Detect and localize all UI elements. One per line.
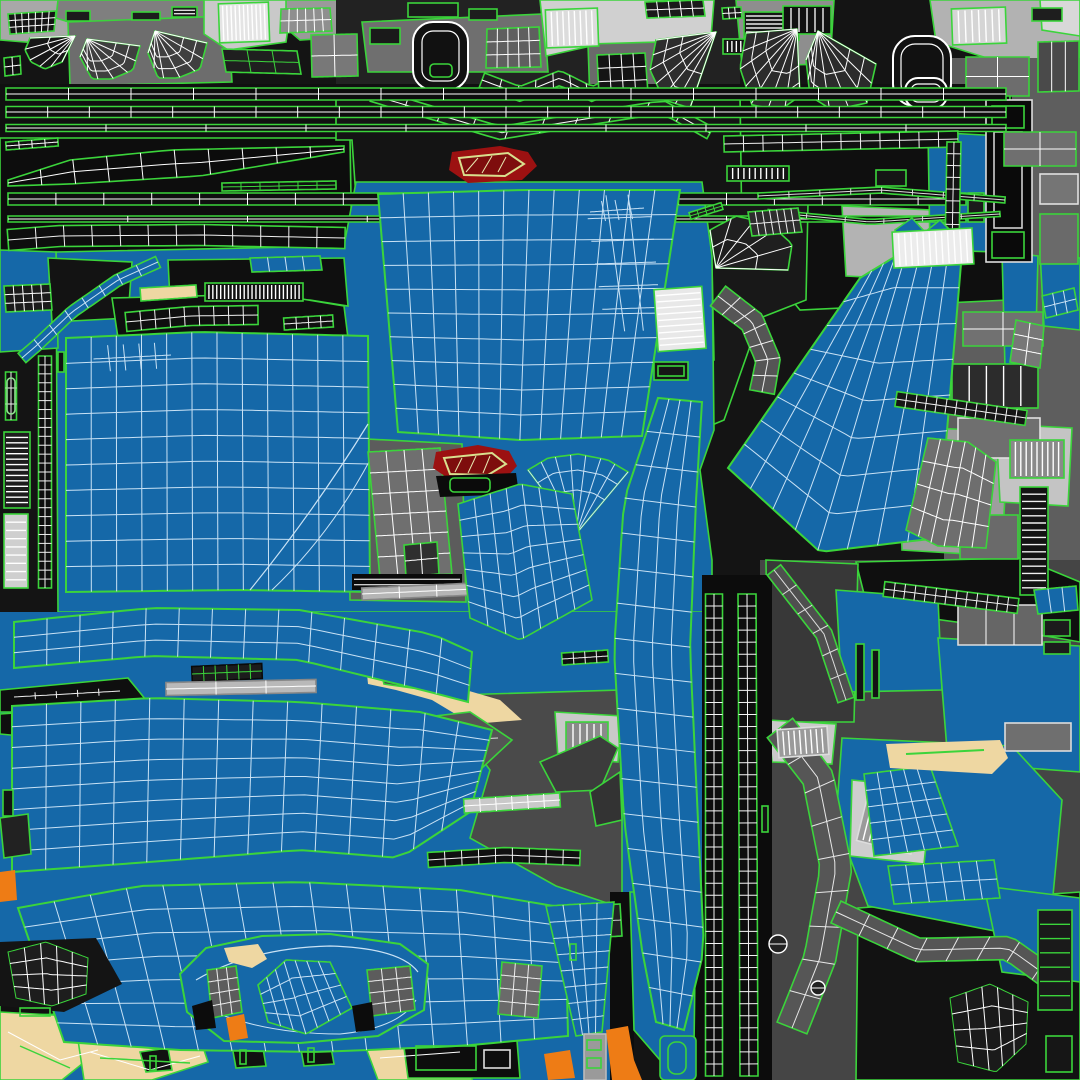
- rect-228: [3, 790, 13, 816]
- stripes-62: [172, 7, 197, 17]
- mesh-64: [280, 8, 332, 33]
- stripes-91: [951, 7, 1006, 45]
- poly-38: [836, 590, 942, 692]
- band-160: [166, 680, 316, 696]
- island-louver-top: [218, 2, 269, 43]
- uv-atlas-canvas: [0, 0, 1080, 1080]
- strip-3: [6, 125, 1006, 132]
- mesh-201: [1034, 586, 1078, 614]
- mesh-130: [250, 256, 322, 272]
- mesh-69: [222, 49, 301, 74]
- uv-texture-atlas: [0, 0, 1080, 1080]
- poly-227: [0, 870, 17, 902]
- island-ladder-1: [706, 594, 723, 1076]
- rect-108: [1005, 723, 1071, 751]
- mesh-70: [311, 34, 358, 77]
- mesh-84: [722, 7, 742, 19]
- island-barcode: [205, 283, 303, 301]
- mesh-174: [367, 966, 415, 1016]
- band-159: [192, 664, 263, 682]
- rect-206: [872, 650, 879, 698]
- mesh-76: [486, 27, 541, 68]
- island-louver-mid: [654, 286, 706, 351]
- rect-219: [1046, 1036, 1072, 1072]
- rect-73: [469, 9, 497, 20]
- stripes-200: [1020, 487, 1048, 595]
- circle-217: [811, 981, 825, 995]
- rect-94: [1032, 8, 1062, 21]
- mesh-190: [748, 208, 802, 236]
- rect-72: [408, 3, 458, 17]
- stripes-77: [545, 8, 598, 48]
- stripes-223: [4, 432, 30, 508]
- panel-door-left: [66, 332, 370, 592]
- rect-203: [1044, 642, 1070, 654]
- strip-2: [6, 107, 1006, 118]
- strip-1: [6, 88, 1006, 100]
- island-seal-ring: [413, 22, 468, 90]
- panel-rear-quarter: [12, 698, 492, 872]
- stripes-119: [727, 166, 789, 181]
- island-ladder-2: [738, 594, 758, 1076]
- stripes-208: [777, 726, 829, 757]
- mesh-187: [1010, 320, 1044, 368]
- band-152: [562, 650, 609, 665]
- band-114: [222, 181, 336, 191]
- stripes-224: [4, 514, 28, 588]
- rect-102: [1040, 214, 1078, 264]
- mesh-212: [888, 860, 1000, 904]
- panel-door-top: [378, 190, 680, 440]
- rect-71: [370, 28, 400, 44]
- stripes-197: [1010, 440, 1064, 478]
- mesh-179: [498, 962, 542, 1018]
- circle-216: [769, 935, 787, 953]
- island-rail: [39, 356, 52, 588]
- rect-193: [654, 362, 688, 380]
- rect-122: [876, 170, 906, 186]
- poly-248: [544, 1050, 575, 1080]
- island-grid-tl: [8, 11, 56, 34]
- rect-205: [856, 644, 864, 700]
- poly-229: [0, 814, 31, 858]
- mesh-124: [4, 284, 52, 312]
- rect-61: [132, 12, 160, 20]
- band-128: [284, 315, 334, 330]
- poly-178: [352, 1002, 375, 1032]
- mesh-100: [1004, 132, 1076, 166]
- rect-60: [66, 11, 90, 21]
- stripes-195: [892, 228, 974, 268]
- rect-226: [58, 352, 64, 372]
- rect-202: [1044, 620, 1070, 636]
- rect-101: [1040, 174, 1078, 204]
- rect-220: [762, 806, 768, 832]
- mesh-66: [4, 56, 21, 76]
- mesh-142: [404, 542, 439, 577]
- mesh-93: [1038, 41, 1079, 92]
- stripes-218: [1038, 910, 1072, 1010]
- mesh-83: [645, 0, 705, 18]
